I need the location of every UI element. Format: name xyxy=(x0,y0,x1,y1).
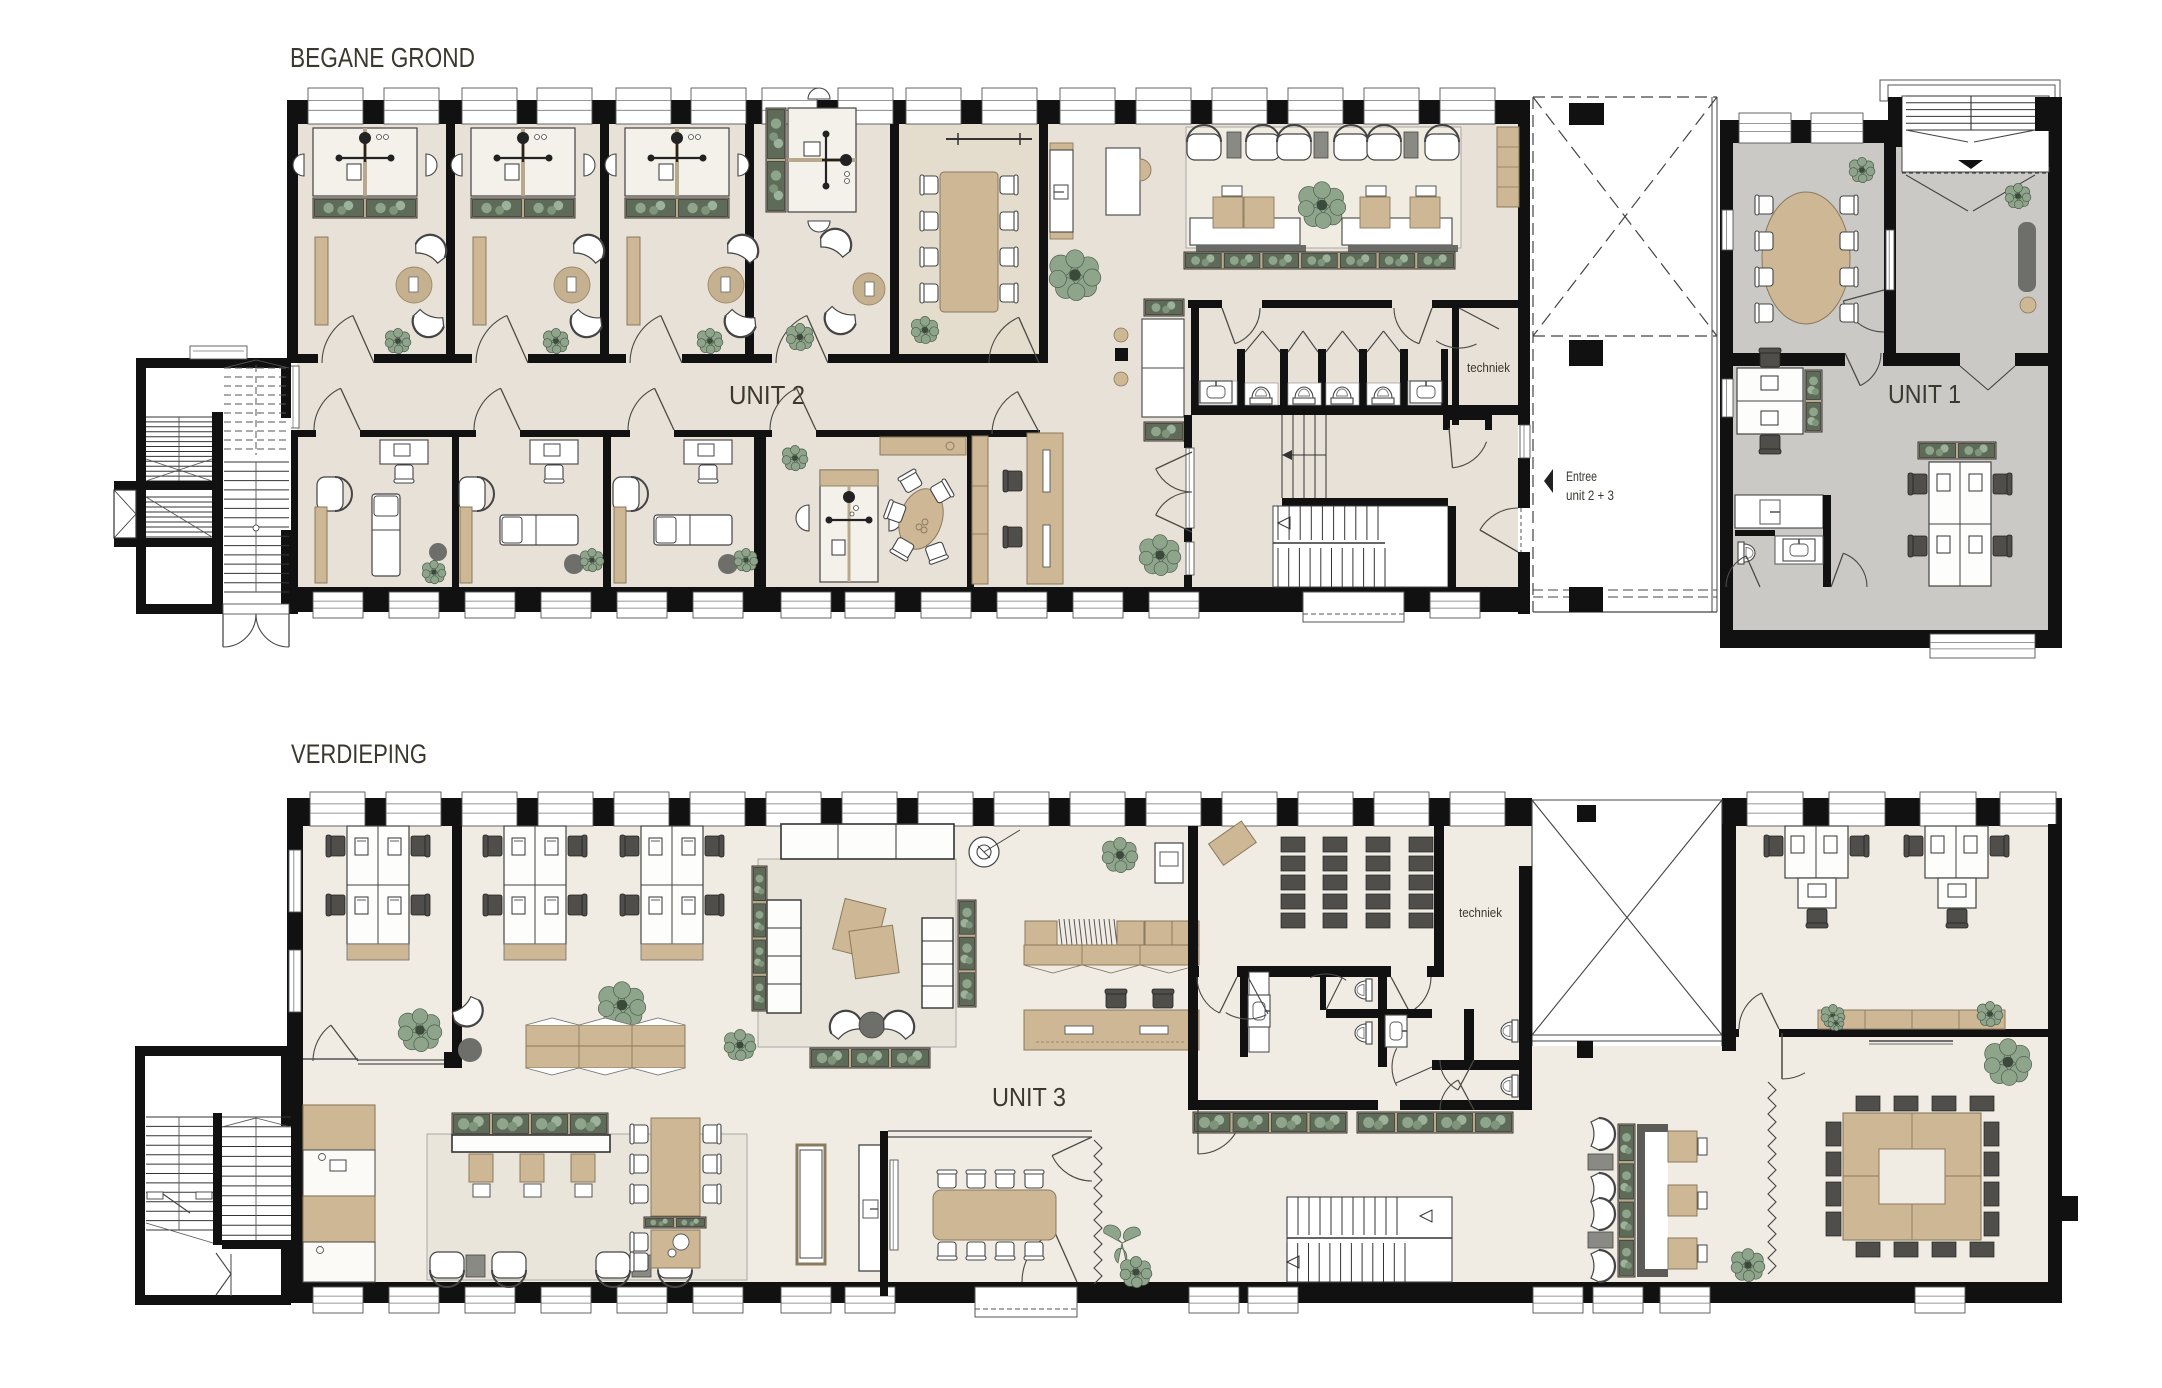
svg-text:VERDIEPING: VERDIEPING xyxy=(291,739,427,769)
svg-text:techniek: techniek xyxy=(1467,360,1510,375)
svg-text:techniek: techniek xyxy=(1459,905,1502,920)
svg-text:Entree: Entree xyxy=(1566,468,1597,484)
svg-text:unit 2 + 3: unit 2 + 3 xyxy=(1566,487,1614,503)
svg-text:BEGANE GROND: BEGANE GROND xyxy=(290,42,475,73)
svg-text:UNIT 2: UNIT 2 xyxy=(729,380,805,410)
svg-text:UNIT 1: UNIT 1 xyxy=(1888,379,1961,409)
svg-text:UNIT 3: UNIT 3 xyxy=(992,1082,1066,1112)
